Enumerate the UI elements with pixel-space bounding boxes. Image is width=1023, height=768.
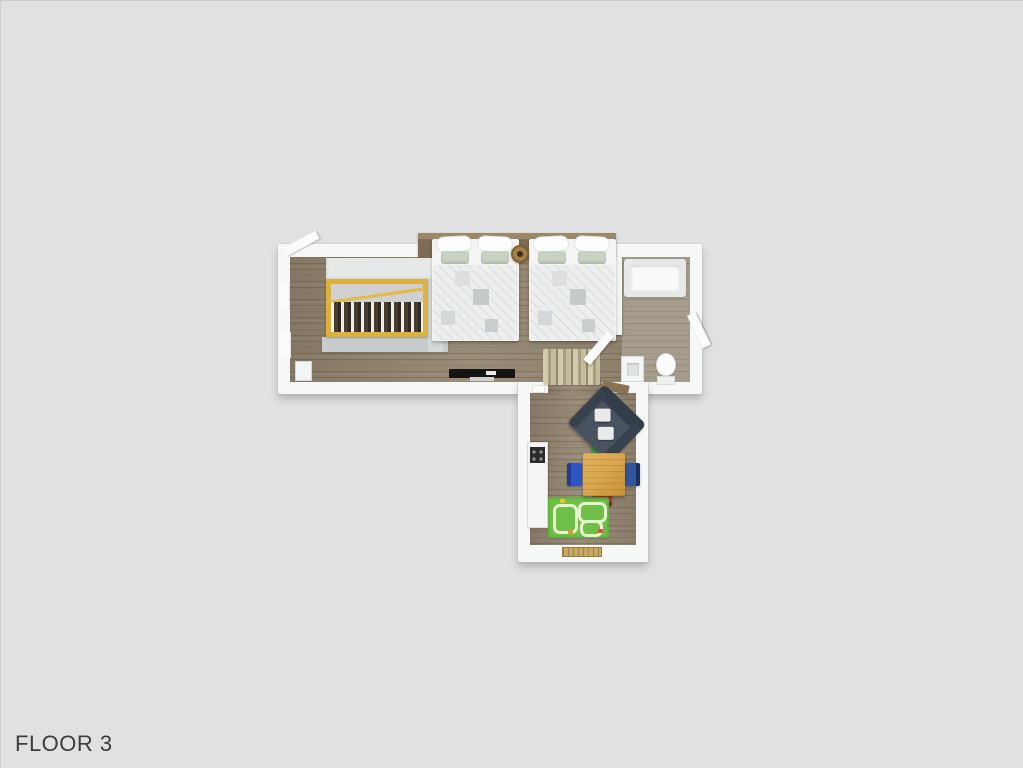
washbasin: [621, 356, 644, 382]
remote: [486, 371, 496, 375]
toilet: [655, 353, 677, 385]
play-mat-detail: [560, 499, 565, 503]
play-mat-detail: [598, 529, 603, 533]
chair-blue: [567, 463, 582, 486]
image-frame-top: [0, 0, 1023, 1]
wall-shelf: [532, 385, 545, 393]
patchwork-duvet: [530, 265, 615, 340]
floor-label: FLOOR 3: [15, 731, 113, 757]
kids-play-mat: [548, 497, 609, 538]
toilet-bowl: [656, 353, 676, 376]
kitchen-unit: [527, 442, 548, 528]
west-wall-panel: [280, 283, 290, 309]
radiator: [295, 361, 312, 381]
west-wall-panel: [281, 332, 291, 358]
sage-pillow: [481, 251, 509, 264]
play-mat-road: [553, 504, 578, 534]
washbasin-bowl: [627, 363, 639, 376]
sage-pillow: [578, 251, 606, 264]
toilet-tank: [657, 376, 675, 385]
double-bed-right: [529, 239, 616, 341]
patchwork-duvet: [433, 265, 518, 340]
dining-table: [583, 453, 625, 496]
cooktop: [530, 447, 545, 463]
sage-pillow: [538, 251, 566, 264]
bathtub-basin: [630, 265, 680, 291]
floor-plan-page: { "page": { "label": "FLOOR 3" }, "scene…: [0, 0, 1023, 768]
bathtub: [624, 259, 686, 297]
double-bed-left: [432, 239, 519, 341]
staircase: [326, 279, 428, 337]
stair-bulkhead: [326, 258, 438, 281]
nightstand: [511, 245, 529, 263]
sofa-pillow: [598, 427, 614, 440]
stair-steps: [331, 302, 423, 332]
door-threshold: [562, 547, 602, 557]
chair-navy: [625, 463, 640, 486]
sofa-pillow: [595, 409, 611, 422]
sage-pillow: [441, 251, 469, 264]
tv-stand: [470, 377, 494, 381]
play-mat-detail: [568, 530, 573, 534]
image-frame-left: [0, 0, 1, 768]
